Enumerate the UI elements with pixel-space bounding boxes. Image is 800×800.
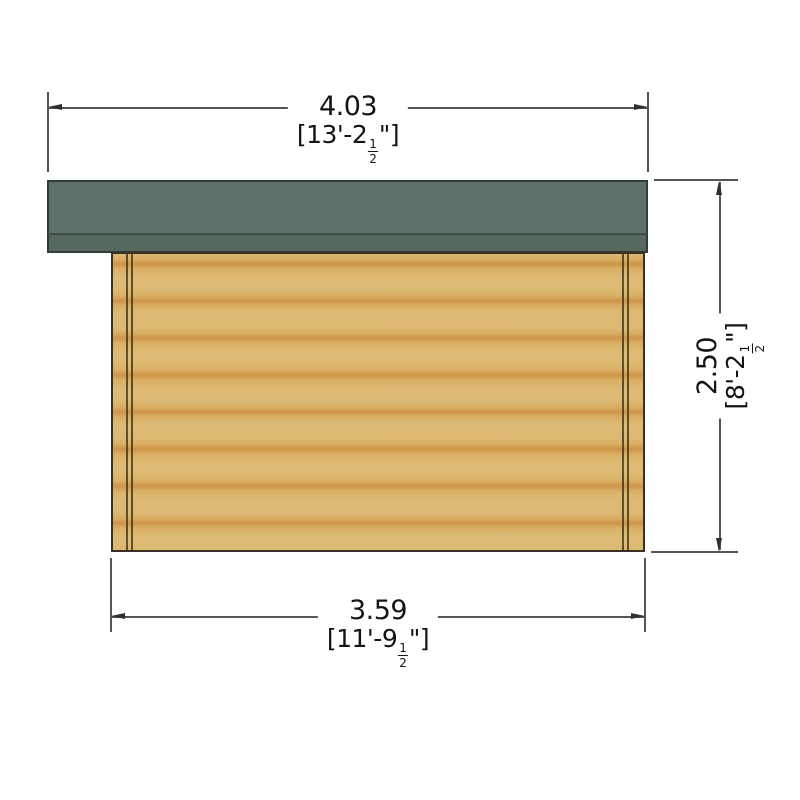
dimension-arrow-icon	[716, 181, 722, 195]
top-dimension-metric-label: 4.03	[297, 93, 399, 121]
bottom-dimension-imperial-label: [11'-912"]	[327, 625, 429, 669]
roof-panel	[47, 180, 648, 253]
corner-post-joint-right	[622, 254, 624, 550]
fraction: 12	[739, 344, 766, 354]
corner-post-joint-left	[126, 254, 128, 550]
dimension-arrow-icon	[716, 538, 722, 552]
top-dimension-imperial-label: [13'-212"]	[297, 121, 399, 165]
right-dimension-imperial-label: [8'-212"]	[722, 323, 766, 410]
dimension-arrow-icon	[48, 104, 62, 110]
extension-line	[651, 551, 738, 553]
fraction: 12	[368, 138, 378, 165]
top-dimension-label: 4.03 [13'-212"]	[288, 93, 408, 165]
elevation-drawing: 4.03 [13'-212"] 2.50 [8'-212"] 3.59 [1	[0, 0, 800, 800]
roof-fascia	[47, 233, 648, 253]
dimension-arrow-icon	[111, 613, 125, 619]
right-dimension-metric-label: 2.50	[694, 323, 722, 410]
corner-post-joint-right	[627, 254, 629, 550]
bottom-dimension-metric-label: 3.59	[327, 597, 429, 625]
bottom-dimension-label: 3.59 [11'-912"]	[318, 597, 438, 669]
fraction: 12	[398, 642, 408, 669]
extension-line	[654, 179, 738, 181]
dimension-arrow-icon	[634, 104, 648, 110]
log-wall	[111, 252, 645, 552]
corner-post-joint-left	[131, 254, 133, 550]
dimension-arrow-icon	[631, 613, 645, 619]
extension-line	[110, 558, 112, 632]
extension-line	[644, 558, 646, 632]
right-dimension-label: 2.50 [8'-212"]	[694, 314, 766, 419]
